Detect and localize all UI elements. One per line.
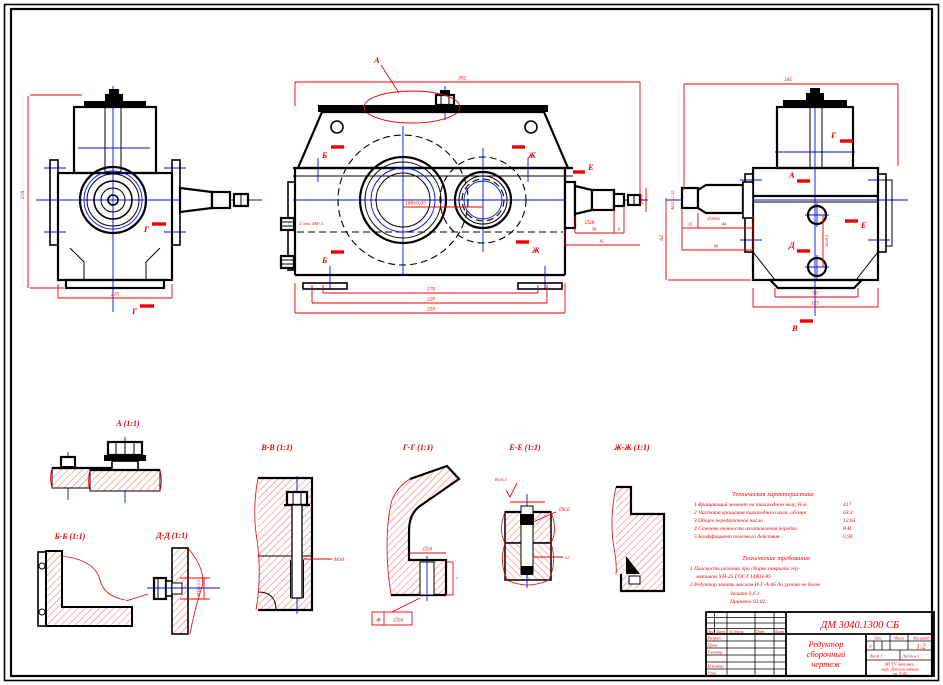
view-front: А 302 160±0,05 170 220 250 ∅18 ∅28 58 8 … <box>281 55 648 313</box>
dim-right-top: 185 <box>784 77 793 83</box>
tech-char-value: 8-В <box>843 526 852 532</box>
tb-row-razrab: Разраб. <box>707 636 722 641</box>
tech-req-title: Технические требования <box>742 555 810 562</box>
dim-center-distance: 160±0,05 <box>405 201 426 207</box>
detail-a-label: А (1:1) <box>115 419 140 428</box>
detail-bb-label: Б-Б (1:1) <box>54 532 86 541</box>
tech-req-line: 2 Редуктор залить маслом И-Г-А-46 до уро… <box>690 581 821 588</box>
dim-shaft-d: ∅28 <box>584 220 595 226</box>
dim-shaft-l2: 8 <box>618 227 621 232</box>
dim-right-b1: 90 <box>812 291 818 297</box>
dim-main-b1: 170 <box>427 287 436 293</box>
detail-a-callout-label: А <box>373 55 380 65</box>
detail-a: А (1:1) <box>51 419 162 503</box>
detail-ee-label: Е-Е (1:1) <box>508 443 541 452</box>
dim-right-l1: 16 <box>688 222 693 227</box>
breather-icon <box>806 93 824 100</box>
technical-characteristics: Техническая характеристика 1 Вращающий м… <box>693 491 856 540</box>
tolerance-frame-value: ∅26 <box>393 618 404 624</box>
tech-req-line: Принято 02.02. <box>729 599 767 605</box>
dim-shaft-end: ∅18 <box>639 195 645 206</box>
tech-char-value: 12,63 <box>843 518 856 524</box>
roughness-symbol-value: Ra 6,3 <box>494 477 507 483</box>
tech-req-line: Залито 3,6 л <box>730 591 760 597</box>
dim-shaft-l1: 58 <box>592 227 597 232</box>
tb-header-podp: Подп. <box>755 630 765 634</box>
tech-char-item: 5 Коэффициент полезного действия <box>694 533 780 540</box>
dim-right-shaft-d: ∅18к6 <box>707 216 721 221</box>
section-mark-b: Б <box>321 255 328 265</box>
section-mark-a: А <box>788 170 795 180</box>
tb-header-massa: Масса <box>893 637 904 641</box>
tech-char-value: 0,96 <box>843 534 853 540</box>
section-mark-g: Г <box>830 130 837 140</box>
detail-dd-label: Д-Д (1:1) <box>155 531 188 540</box>
tech-char-value: 417 <box>843 501 852 508</box>
tb-header-izm: Изм. <box>706 630 715 634</box>
tb-header-masshtab: Масштаб <box>912 637 930 641</box>
detail-ee: Е-Е (1:1) Ra 6,3 ∅6,6 12 <box>494 443 570 588</box>
tb-header-lit: Лит. <box>873 637 882 641</box>
dim-ee-d: ∅6,6 <box>558 507 570 513</box>
detail-gg: Г-Г (1:1) ∅24 7 ⊕ ∅26 <box>372 443 459 625</box>
detail-dd: Д-Д (1:1) М16×1,5 <box>147 531 220 634</box>
tb-list: Лист 1 <box>868 654 883 659</box>
section-mark-d: Д <box>788 240 796 250</box>
section-mark-v: В <box>791 323 798 333</box>
dim-main-top: 302 <box>457 76 467 82</box>
detail-gg-label: Г-Г (1:1) <box>402 443 434 452</box>
tb-row-prov: Пров. <box>707 643 719 648</box>
section-mark-e: Е <box>587 162 594 172</box>
dim-shaft-l3: 82 <box>600 239 605 244</box>
tb-name: чертеж <box>811 659 841 669</box>
dim-left-width: 210 <box>111 292 120 298</box>
dim-holes: 52±0,3 <box>824 234 830 247</box>
tb-name: сборочный <box>807 649 846 659</box>
section-mark-g: Г <box>131 306 138 316</box>
section-mark-e: Е <box>860 220 867 230</box>
tech-req-line: 1 Плоскость разъема при сборке покрыть г… <box>690 565 800 572</box>
detail-vv: В-В (1:1) М10 <box>255 443 345 614</box>
tb-lit-value: У <box>869 644 873 649</box>
tb-header-doc: № докум. <box>728 630 744 634</box>
tech-char-item: 1 Вращающий момент на тихоходном валу, Н… <box>694 501 807 508</box>
tb-org: гр. 3-42 <box>893 671 908 676</box>
dim-right-l3: 98 <box>714 244 719 249</box>
view-left-side: 218 210 Г Г <box>20 86 262 316</box>
tolerance-frame-symbol: ⊕ <box>376 618 381 624</box>
technical-requirements: Технические требования 1 Плоскость разъе… <box>690 555 821 605</box>
dim-gg-d: ∅24 <box>422 546 433 553</box>
tb-listov: Листов 1 <box>901 654 920 659</box>
dim-ee-l: 12 <box>565 555 570 560</box>
detail-bb: Б-Б (1:1) <box>38 532 148 626</box>
tech-char-title: Техническая характеристика <box>732 491 814 498</box>
tb-name: Редуктор <box>808 639 844 649</box>
tb-row-utv: Утв. <box>708 671 717 676</box>
tb-scale: 1:2 <box>916 643 926 651</box>
tb-header-list: Лист <box>715 630 725 634</box>
dim-right-left: 82 <box>659 235 665 241</box>
dim-left-height: 218 <box>20 191 26 200</box>
detail-zhzh: Ж-Ж (1:1) <box>612 443 664 591</box>
detail-vv-label: В-В (1:1) <box>260 443 293 452</box>
dim-right-l2: 44 <box>722 222 727 227</box>
drawing-sheet: 218 210 Г Г А 302 160±0,05 170 220 25 <box>0 0 943 685</box>
section-mark-g: Г <box>143 224 150 234</box>
tech-char-value: 63,3 <box>843 510 853 516</box>
section-mark-b: Б <box>321 150 328 160</box>
label-oil-plugs: 2 отв. М8×1 <box>299 221 323 226</box>
section-mark-zh: Ж <box>531 245 541 255</box>
tb-doc-number: ДМ 3040.1300 СБ <box>820 620 900 631</box>
dim-right-b2: 125 <box>811 301 820 307</box>
dim-main-b2: 220 <box>427 297 436 303</box>
tb-header-data: Дата <box>774 630 784 634</box>
assembly-drawing: 218 210 Г Г А 302 160±0,05 170 220 25 <box>0 0 943 685</box>
tech-req-line: метиком УН-25 ГОСТ 14803-85 <box>695 573 771 580</box>
view-right-side: 185 82 М12×1,25 ∅18к6 16 44 98 52±0,3 90… <box>659 77 908 333</box>
detail-zhzh-label: Ж-Ж (1:1) <box>613 443 650 452</box>
dim-gg-h: 7 <box>456 576 459 581</box>
tech-char-item: 4 Степень точности изготовления передач <box>694 525 797 532</box>
oil-drain-plug <box>281 256 294 268</box>
dim-main-b3: 250 <box>427 307 436 313</box>
breather-icon <box>436 95 454 105</box>
section-mark-zh: Ж <box>527 150 537 160</box>
oil-level-plug <box>281 218 294 230</box>
tb-row-nkontr: Н.контр. <box>707 664 725 669</box>
tech-char-item: 3 Общее передаточное число <box>693 517 763 524</box>
dim-vv-leader: М10 <box>333 557 344 563</box>
title-block: Изм. Лист № докум. Подп. Дата Разраб. Пр… <box>706 612 934 676</box>
breather-icon <box>105 94 123 101</box>
tb-row-tkontr: Т.контр. <box>708 650 724 655</box>
tech-char-item: 2 Частота вращения тихоходного вала, об/… <box>694 509 806 516</box>
